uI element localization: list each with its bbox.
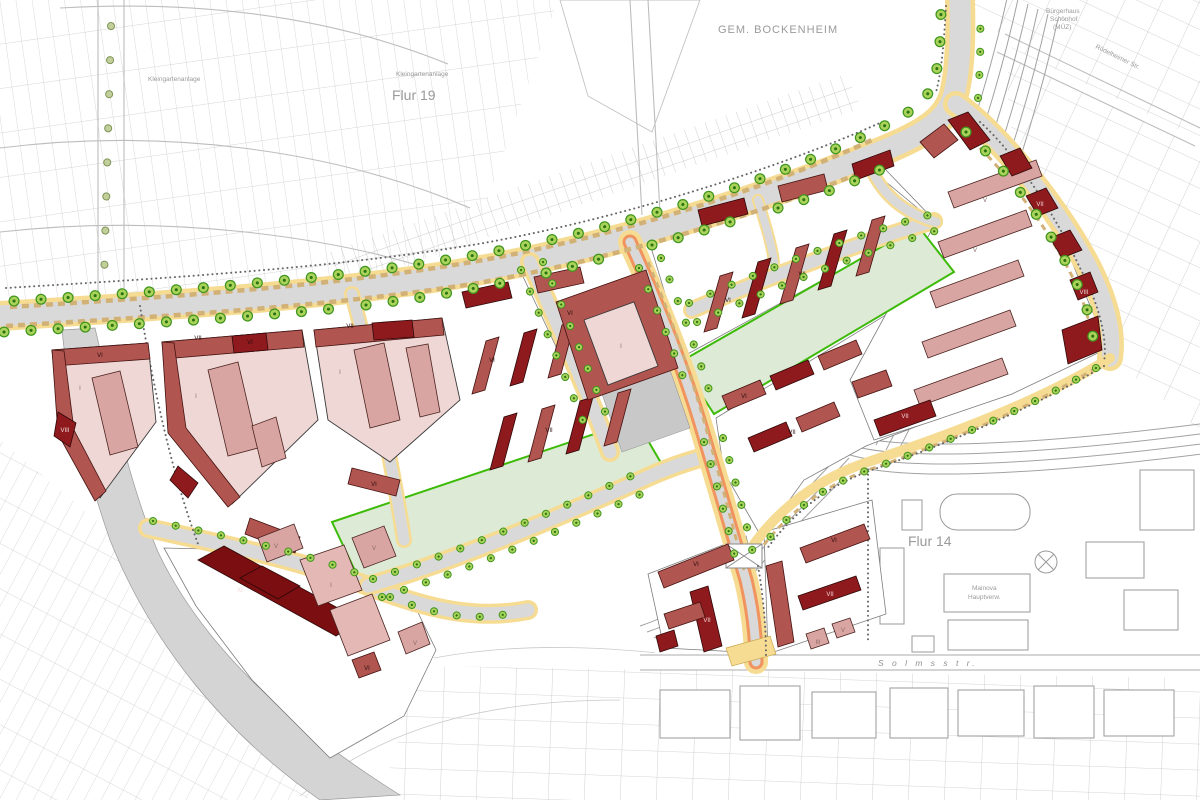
storey-label: VII [703,618,711,624]
storey-label: VI [247,340,253,346]
label-kleingarten-west: Kleingartenanlage [148,76,201,83]
storey-label: VIII [60,428,69,434]
storey-label: V [841,628,845,634]
storey-label: VI [831,538,837,544]
industrial-building [1086,542,1144,578]
site-plan-map: VI I VIII VII VI I VIII VII I VI [0,0,1200,800]
storey-label: VII [901,414,909,420]
storey-label: V [413,641,417,647]
storey-label: V [983,198,987,204]
storey-label: VI [693,562,699,568]
map-canvas: VI I VIII VII VI I VIII VII I VI [0,0,1200,800]
gas-holder [940,494,1030,530]
industrial-building [912,636,934,652]
label-mainova-1: Mainova [972,585,997,592]
storey-label: III [815,640,820,646]
storey-label: VII [1036,202,1044,208]
block-b2: VII VI I VIII [162,330,318,553]
label-mainova-2: Hauptverw. [968,594,1001,601]
label-solmsstr: S o l m s s t r. [878,658,978,668]
storey-label: VII [545,428,553,434]
storey-label: VI [725,298,731,304]
field-triangle [560,0,700,132]
block-b1: VI I VIII [52,343,156,501]
label-kleingarten-east: Kleingartenanlage [396,71,449,78]
storey-label: VII [826,592,834,598]
storey-label: XI [237,588,243,594]
storey-label: V [372,546,376,552]
label-buergerhaus-3: (MÜZ) [1053,23,1071,31]
storey-label: VI [364,666,370,672]
label-flur19: Flur 19 [392,87,436,103]
storey-label: VIII [1079,290,1088,296]
label-buergerhaus-2: Schönhof [1050,16,1078,23]
industrial-building [1124,590,1178,630]
industrial-building [902,500,922,530]
label-gemeinde: GEM. BOCKENHEIM [718,24,838,36]
label-flur14: Flur 14 [908,533,952,549]
storey-label: VI [489,358,495,364]
mainova-building [948,620,1028,650]
storey-label: VII [346,324,354,330]
storey-label: VII [194,336,202,342]
storey-label: V [973,248,977,254]
storey-label: VI [567,311,573,317]
storey-label: VI [741,394,747,400]
mainova-building [944,574,1030,612]
industrial-building [1140,470,1194,530]
storey-label: VII [788,430,796,436]
storey-label: VI [97,353,103,359]
label-buergerhaus-1: Bürgerhaus [1046,8,1080,15]
storey-label: V [274,544,278,550]
storey-label: VI [371,482,377,488]
